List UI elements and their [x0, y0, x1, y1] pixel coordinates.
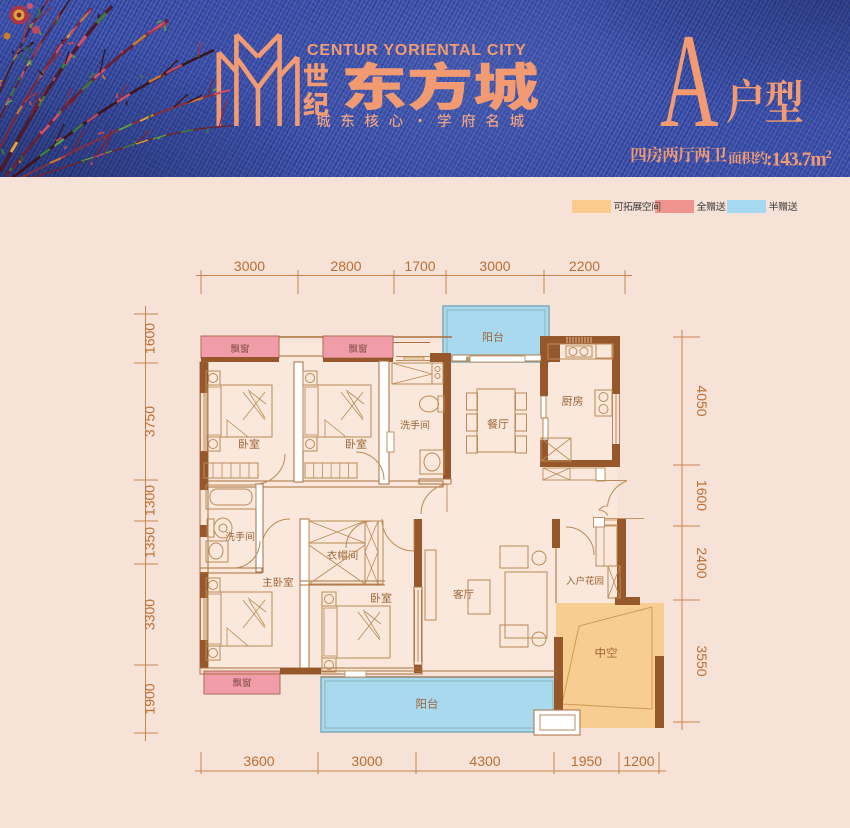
svg-text:4050: 4050 — [694, 385, 710, 416]
svg-text:1950: 1950 — [571, 753, 602, 769]
svg-text:4300: 4300 — [469, 753, 500, 769]
svg-text:1700: 1700 — [404, 258, 435, 274]
svg-text:1900: 1900 — [142, 683, 158, 714]
svg-text:2400: 2400 — [694, 547, 710, 578]
svg-text:3300: 3300 — [142, 599, 158, 630]
svg-text:2200: 2200 — [569, 258, 600, 274]
svg-text:3750: 3750 — [142, 406, 158, 437]
svg-text:3000: 3000 — [234, 258, 265, 274]
svg-text:1300: 1300 — [142, 485, 158, 516]
svg-text:1600: 1600 — [694, 480, 710, 511]
svg-text:2800: 2800 — [330, 258, 361, 274]
svg-text:3000: 3000 — [479, 258, 510, 274]
svg-text:3000: 3000 — [351, 753, 382, 769]
svg-text:3550: 3550 — [694, 645, 710, 676]
svg-text:1200: 1200 — [623, 753, 654, 769]
svg-text:3600: 3600 — [243, 753, 274, 769]
svg-text:1350: 1350 — [142, 527, 158, 558]
svg-text:1600: 1600 — [142, 323, 158, 354]
